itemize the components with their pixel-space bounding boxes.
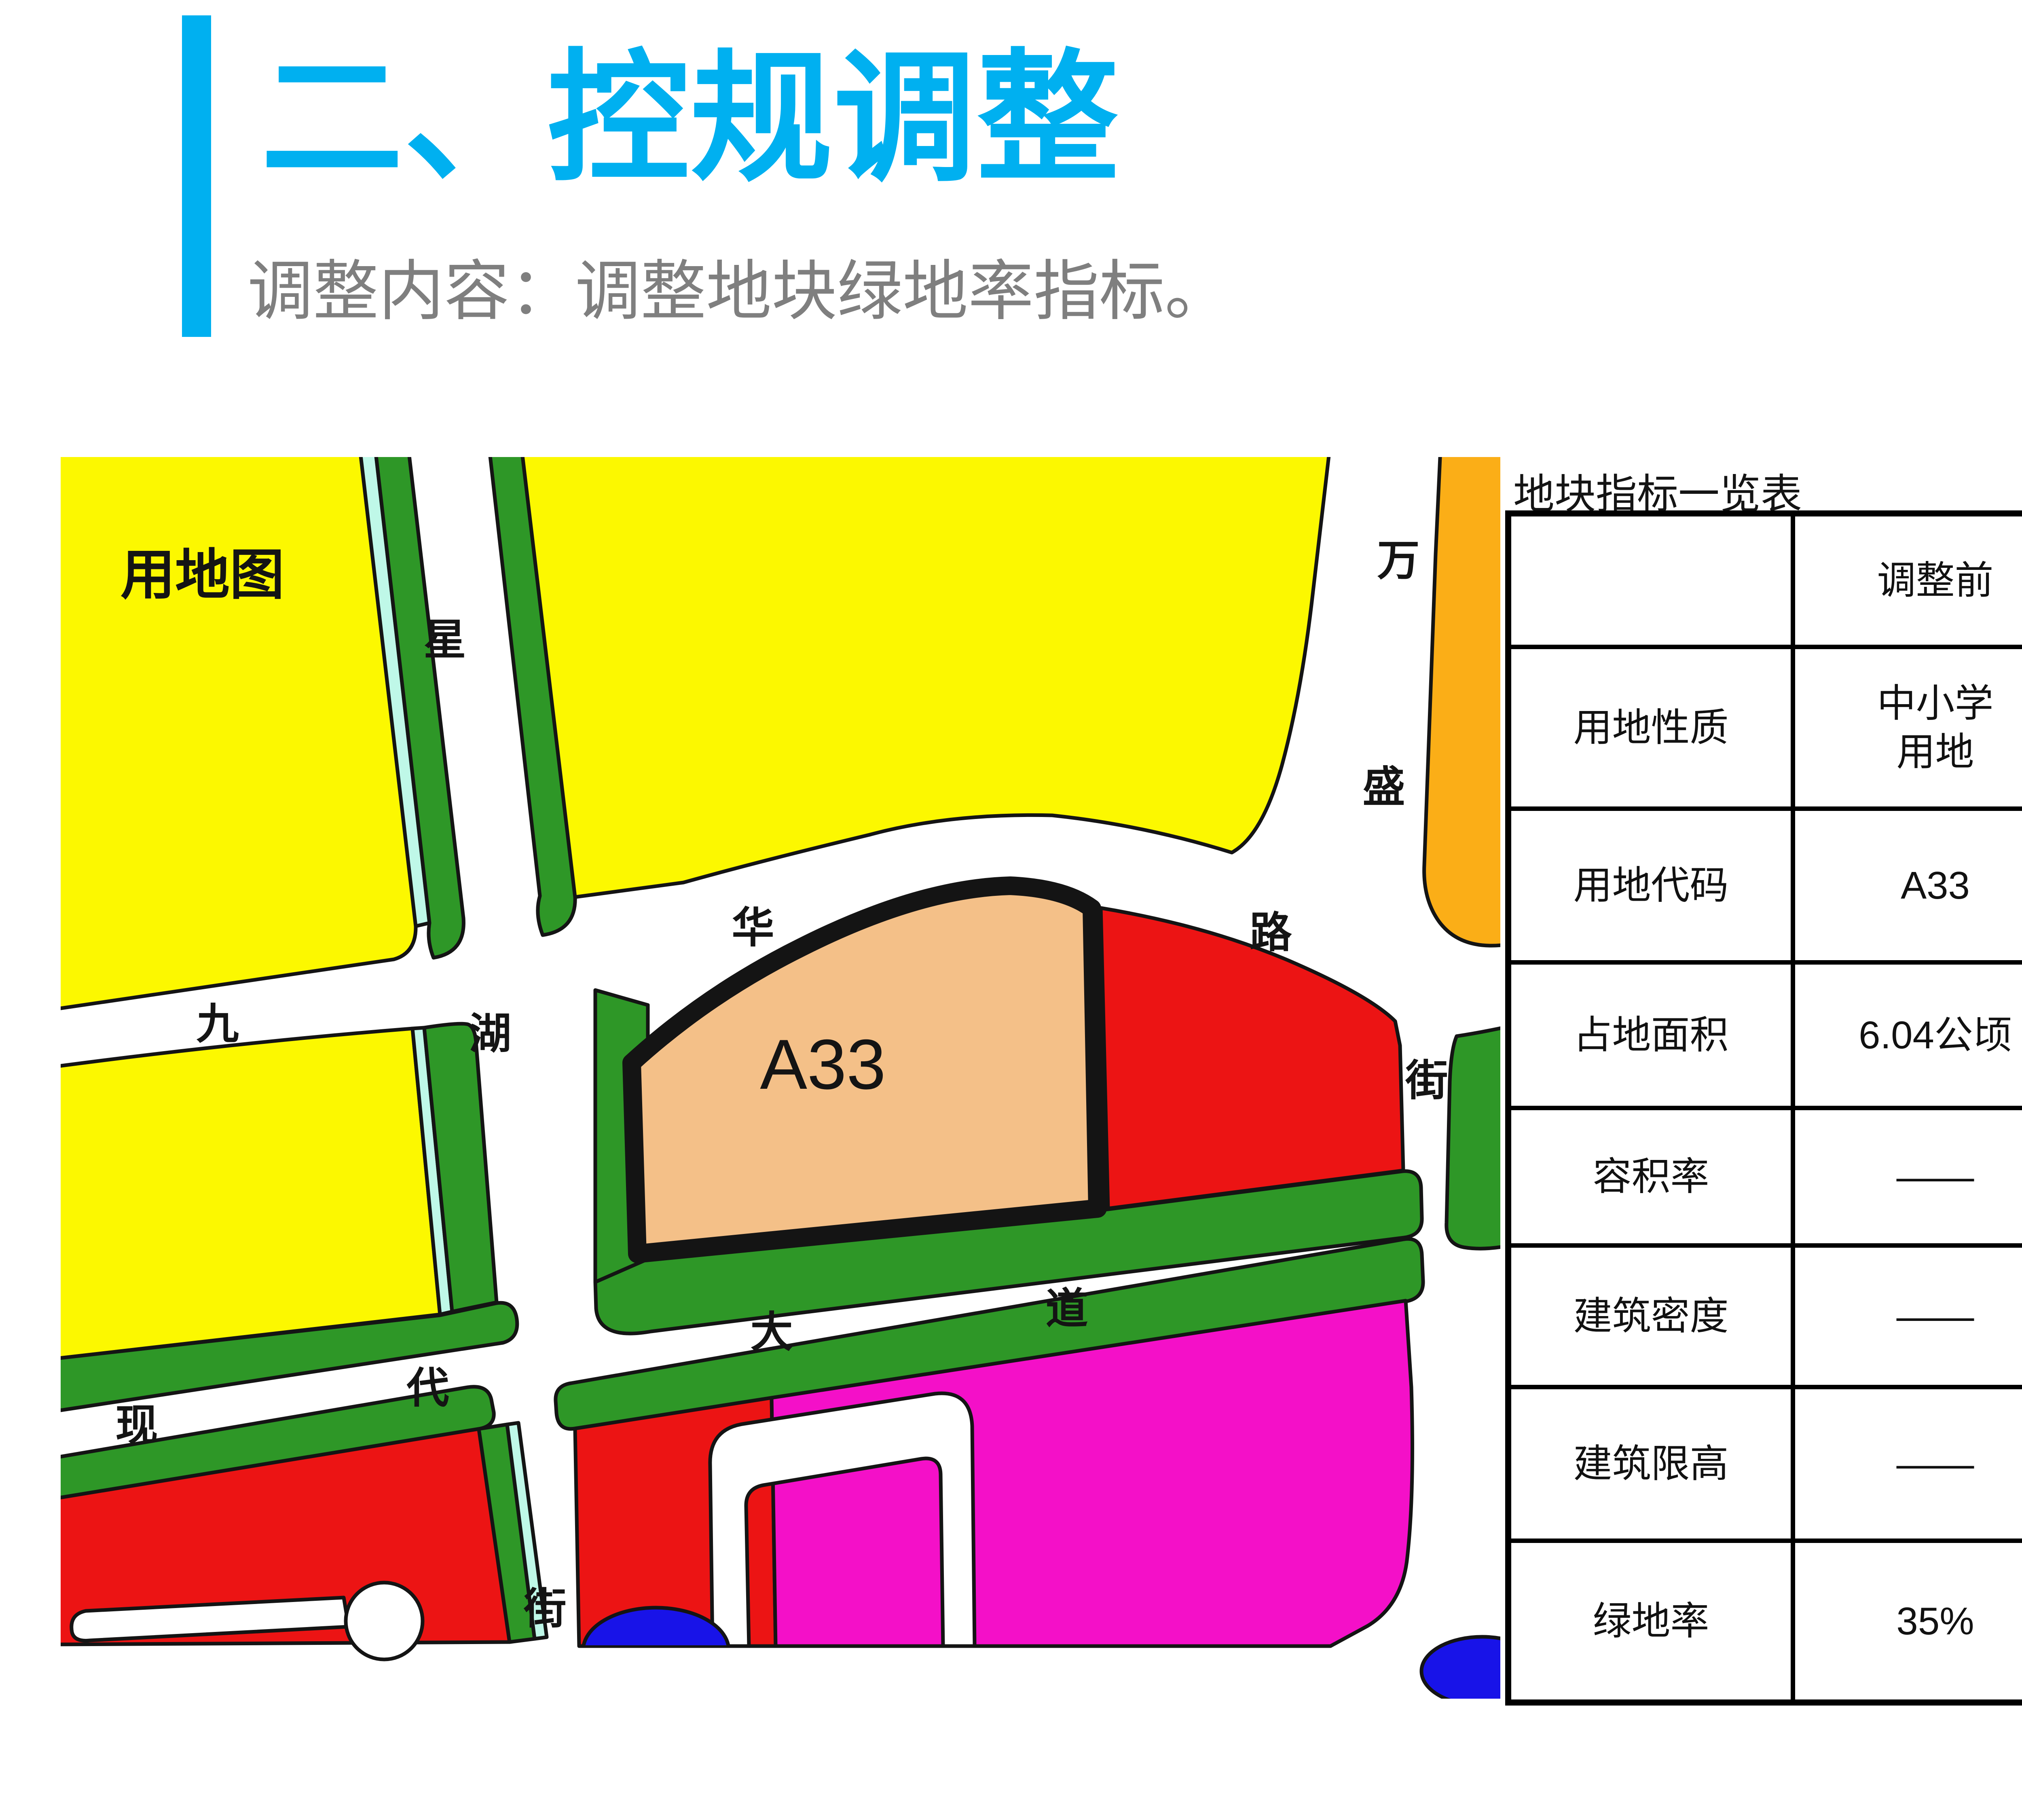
table-row: 占地面积 6.04公顷 6.04公顷 [1508, 963, 2022, 1108]
table-header-row: 调整前 调整后 [1508, 514, 2022, 647]
row-before: 中小学 用地 [1793, 647, 2022, 809]
row-before: —— [1793, 1108, 2022, 1246]
map-label-dai: 代 [406, 1365, 449, 1412]
table-row: 建筑限高 —— —— [1508, 1387, 2022, 1541]
row-before: A33 [1793, 809, 2022, 963]
row-label: 用地代码 [1508, 809, 1793, 963]
map-corner-label: 用地图 [121, 546, 284, 606]
map-label-jie-right: 街 [1405, 1057, 1448, 1105]
row-label: 容积率 [1508, 1108, 1793, 1246]
table-header-before: 调整前 [1793, 514, 2022, 647]
map-strip-green-east [1447, 1026, 1500, 1249]
land-use-map: 用地图 星 万 盛 路 街 九 湖 华 A33 现 代 大 道 街 [61, 457, 1500, 1699]
map-road-lollipop-circle [346, 1583, 423, 1659]
map-label-xing: 星 [423, 616, 466, 664]
row-before: —— [1793, 1387, 2022, 1541]
row-before: 6.04公顷 [1793, 963, 2022, 1108]
table-row: 用地性质 中小学 用地 中小学 用地 [1508, 647, 2022, 809]
map-label-jie-bottom: 街 [523, 1585, 566, 1633]
map-label-hua: 华 [732, 904, 774, 952]
row-before: —— [1793, 1246, 2022, 1387]
parcel-a33-label: A33 [760, 1025, 886, 1104]
map-label-lu: 路 [1249, 909, 1292, 957]
map-label-jiu: 九 [196, 1001, 239, 1048]
row-label: 建筑密度 [1508, 1246, 1793, 1387]
slide: 二、控规调整 调整内容：调整地块绿地率指标。 [0, 0, 2022, 1820]
map-label-hu: 湖 [469, 1010, 511, 1058]
map-block-blue-corner [1421, 1637, 1500, 1699]
map-label-xian: 现 [115, 1402, 158, 1449]
table-row: 建筑密度 —— —— [1508, 1246, 2022, 1387]
table-row: 用地代码 A33 A33 [1508, 809, 2022, 963]
map-block-yellow-sw [61, 1029, 440, 1359]
map-label-sheng: 盛 [1362, 764, 1405, 811]
page-subtitle: 调整内容：调整地块绿地率指标。 [247, 238, 1230, 333]
table-row-greenrate: 绿地率 35% 20% [1508, 1541, 2022, 1703]
indicator-table: 调整前 调整后 用地性质 中小学 用地 中小学 用地 用地代码 A33 A33 … [1505, 510, 2022, 1706]
row-label: 占地面积 [1508, 963, 1793, 1108]
page-title: 二、控规调整 [261, 40, 1120, 197]
map-label-wan: 万 [1377, 537, 1419, 584]
row-label: 用地性质 [1508, 647, 1793, 809]
map-block-blue-pond [583, 1608, 729, 1693]
row-label: 绿地率 [1508, 1541, 1793, 1703]
map-label-dao: 道 [1045, 1285, 1088, 1333]
accent-bar [182, 15, 211, 337]
table-row: 容积率 —— —— [1508, 1108, 2022, 1246]
row-label: 建筑限高 [1508, 1387, 1793, 1541]
table-header-empty [1508, 514, 1793, 647]
map-block-yellow-nw [61, 457, 416, 1009]
map-block-yellow-ne [522, 457, 1330, 897]
map-label-da: 大 [750, 1309, 793, 1356]
map-block-orange [1424, 457, 1500, 946]
row-before: 35% [1793, 1541, 2022, 1703]
